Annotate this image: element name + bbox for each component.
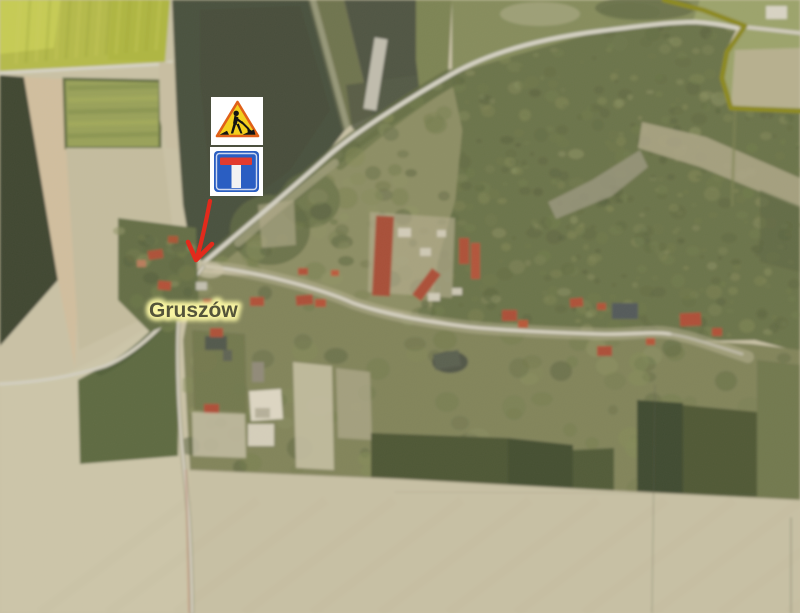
svg-text:Gruszów: Gruszów [149,299,238,322]
